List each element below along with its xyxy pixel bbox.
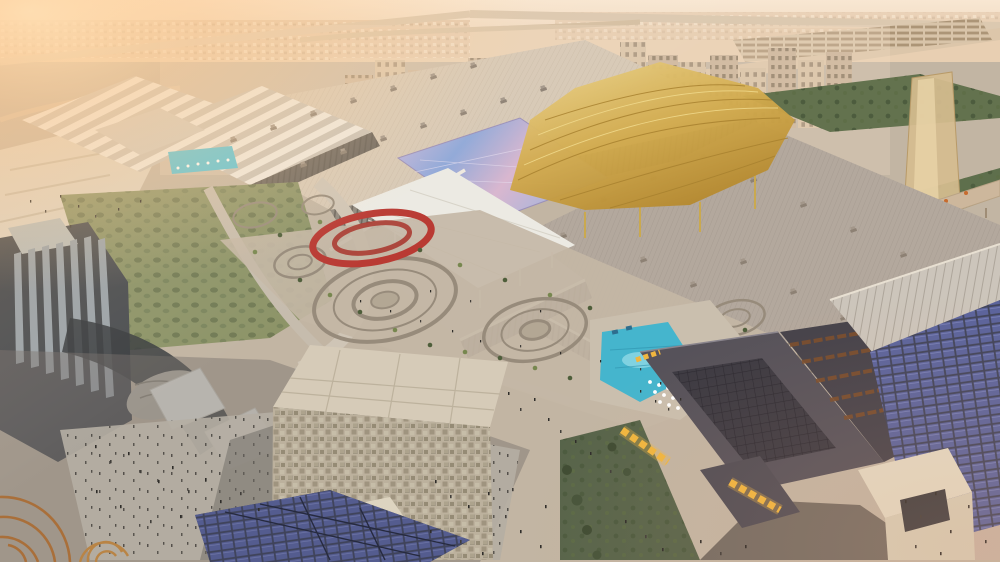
aerial-rendering: [0, 0, 1000, 562]
bottom-right-glow: [0, 0, 1000, 562]
rendering-stage: [0, 0, 1000, 562]
